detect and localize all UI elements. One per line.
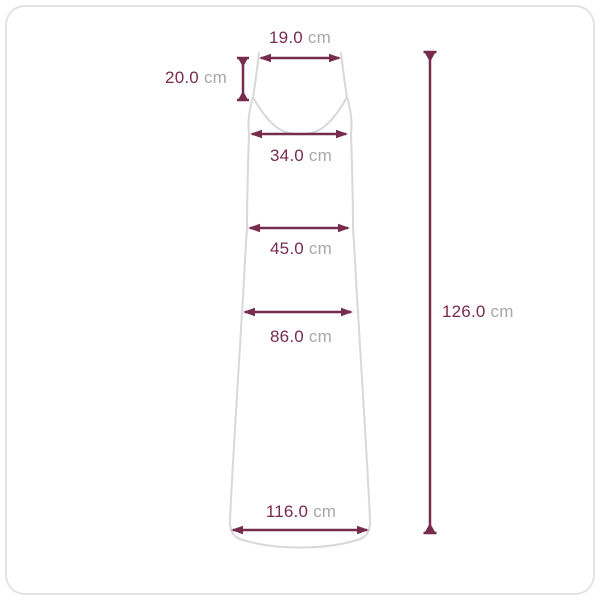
total-length-label: 126.0 cm	[442, 302, 514, 322]
dress-measurement-diagram: { "diagram": { "subject": "sleeveless-ma…	[0, 0, 600, 600]
waist-width-value: 45.0	[270, 239, 304, 259]
bust-width-label: 34.0 cm	[270, 146, 332, 166]
waist-width-unit: cm	[309, 239, 332, 259]
hip-width-unit: cm	[309, 327, 332, 347]
hem-width-unit: cm	[313, 502, 336, 522]
strap-length-value: 20.0	[165, 68, 199, 88]
bust-width-unit: cm	[309, 146, 332, 166]
strap-length-label: 20.0 cm	[165, 68, 227, 88]
hem-width-value: 116.0	[266, 502, 308, 522]
hem-width-label: 116.0 cm	[266, 502, 336, 522]
strap-width-label: 19.0 cm	[269, 28, 331, 48]
hip-width-label: 86.0 cm	[270, 327, 332, 347]
bust-width-value: 34.0	[270, 146, 304, 166]
total-length-value: 126.0	[442, 302, 486, 322]
total-length-unit: cm	[491, 302, 514, 322]
strap-length-unit: cm	[204, 68, 227, 88]
bust-width-dimension	[250, 130, 348, 138]
hip-width-value: 86.0	[270, 327, 304, 347]
strap-width-unit: cm	[308, 28, 331, 48]
strap-width-value: 19.0	[269, 28, 303, 48]
hem-width-dimension	[231, 526, 369, 534]
waist-width-label: 45.0 cm	[270, 239, 332, 259]
total-length-dimension	[424, 52, 437, 533]
strap-length-dimension	[237, 58, 249, 100]
hip-width-dimension	[243, 308, 353, 316]
waist-width-dimension	[248, 224, 350, 232]
dress-outline	[230, 53, 370, 548]
dress-neckline	[253, 97, 347, 135]
strap-width-dimension	[259, 54, 341, 62]
